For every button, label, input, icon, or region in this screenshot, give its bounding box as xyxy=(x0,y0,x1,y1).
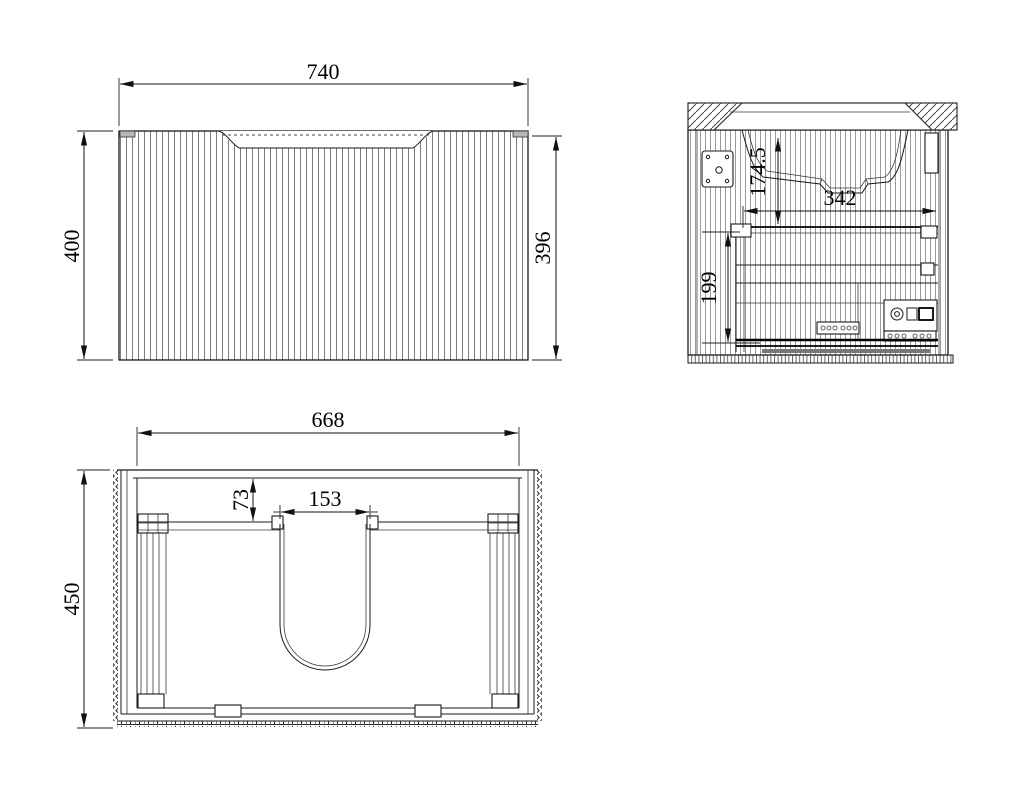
plan-section-view: 668 450 73 153 xyxy=(59,407,542,728)
dim-199-label: 199 xyxy=(696,272,721,305)
front-panel-band xyxy=(117,705,538,727)
side-section-view: 174.5 342 199 xyxy=(688,103,957,363)
dim-668-label: 668 xyxy=(312,407,345,432)
bottom-edge-band xyxy=(688,355,953,363)
mounting-plate xyxy=(702,151,733,187)
drawer-slide-right xyxy=(488,514,518,708)
fluted-edge-right xyxy=(537,470,542,721)
dim-396-label: 396 xyxy=(530,232,555,265)
dim-73-label: 73 xyxy=(228,489,253,511)
plumbing-cutout xyxy=(280,524,370,670)
wall-bracket-left xyxy=(120,131,135,137)
wall-bracket-right xyxy=(513,131,528,137)
dimension-396: 396 xyxy=(530,136,562,360)
vanity-cabinet-drawing: 740 400 396 xyxy=(0,0,1024,803)
handle-recess xyxy=(219,131,433,148)
dimension-450: 450 xyxy=(59,470,113,728)
overflow-channel xyxy=(925,133,938,173)
dim-740-label: 740 xyxy=(307,59,340,84)
fluted-front-panel xyxy=(119,131,528,360)
top-rail xyxy=(137,516,519,530)
front-clip-right xyxy=(415,705,441,717)
shelf-clip-upper xyxy=(921,226,937,238)
drawer-slide-left xyxy=(138,514,168,708)
dim-450-label: 450 xyxy=(59,583,84,616)
dimension-73: 73 xyxy=(228,479,253,521)
technical-drawing-canvas: 740 400 396 xyxy=(0,0,1024,803)
slide-rail-bar xyxy=(762,349,930,353)
fluted-edge-left xyxy=(113,470,118,721)
dimension-153: 153 xyxy=(273,486,378,519)
dim-342-label: 342 xyxy=(824,185,857,210)
dimension-668: 668 xyxy=(137,407,519,466)
dimension-740: 740 xyxy=(119,59,528,126)
dim-400-label: 400 xyxy=(59,230,84,263)
dim-174-5-label: 174.5 xyxy=(745,147,770,197)
shelf-clip-lower xyxy=(921,263,934,275)
dim-153-label: 153 xyxy=(309,486,342,511)
dimension-400: 400 xyxy=(59,131,113,360)
front-clip-left xyxy=(215,705,241,717)
fluted-front-edge xyxy=(117,721,538,727)
front-view: 740 400 396 xyxy=(59,59,562,360)
